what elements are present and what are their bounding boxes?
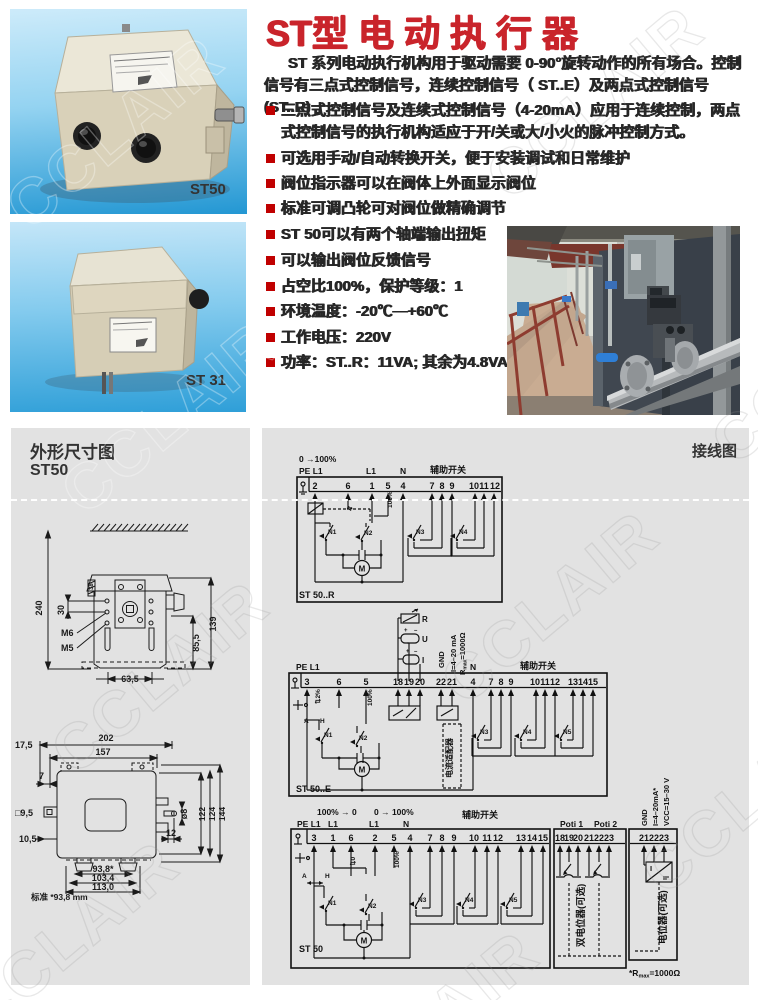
svg-text:N2: N2 <box>364 530 373 537</box>
svg-text:GND: GND <box>437 651 446 668</box>
svg-text:GND: GND <box>640 809 649 826</box>
svg-text:1: 1 <box>330 833 335 843</box>
svg-text:N4: N4 <box>459 529 468 536</box>
svg-text:3: 3 <box>311 833 316 843</box>
svg-text:+: + <box>406 649 410 655</box>
svg-text:122: 122 <box>197 807 207 821</box>
svg-text:4: 4 <box>400 481 405 491</box>
svg-text:113,0: 113,0 <box>92 882 114 892</box>
svg-text:双电位器(可选): 双电位器(可选) <box>575 884 587 948</box>
svg-text:12: 12 <box>550 677 560 687</box>
svg-text:N3: N3 <box>416 529 425 536</box>
svg-text:11: 11 <box>479 481 489 491</box>
svg-text:15: 15 <box>538 833 548 843</box>
svg-text:N5: N5 <box>509 897 518 904</box>
svg-text:202: 202 <box>98 733 113 743</box>
svg-text:11: 11 <box>540 677 550 687</box>
svg-text:8: 8 <box>439 481 444 491</box>
svg-text:7: 7 <box>39 771 44 781</box>
svg-text:0 → 100%: 0 → 100% <box>374 807 414 817</box>
svg-text:5: 5 <box>363 677 368 687</box>
svg-text:15: 15 <box>588 677 598 687</box>
svg-text:N5: N5 <box>563 729 572 736</box>
svg-text:M: M <box>361 937 368 946</box>
svg-text:14: 14 <box>578 677 588 687</box>
svg-text:20: 20 <box>573 833 583 843</box>
svg-text:18: 18 <box>393 677 403 687</box>
svg-text:N1: N1 <box>324 732 333 739</box>
svg-text:2: 2 <box>372 833 377 843</box>
svg-text:20: 20 <box>415 677 425 687</box>
svg-text:I=4–20mA*: I=4–20mA* <box>651 788 660 826</box>
svg-text:100%: 100% <box>394 851 401 868</box>
svg-text:10,5: 10,5 <box>19 834 37 844</box>
svg-text:38: 38 <box>89 583 95 590</box>
svg-text:N: N <box>403 819 409 829</box>
svg-text:⇅2%: ⇅2% <box>314 689 322 704</box>
svg-text:6: 6 <box>348 833 353 843</box>
svg-text:ST 50..E: ST 50..E <box>296 784 331 794</box>
svg-text:85,5: 85,5 <box>191 634 201 652</box>
svg-text:2: 2 <box>312 481 317 491</box>
svg-text:ø8: ø8 <box>179 809 189 820</box>
svg-text:H: H <box>320 718 325 725</box>
svg-text:I=4–20 mA: I=4–20 mA <box>449 634 458 672</box>
svg-text:⇅: ⇅ <box>345 504 355 514</box>
svg-text:0 →100%: 0 →100% <box>299 454 337 464</box>
svg-text:7: 7 <box>427 833 432 843</box>
svg-text:H: H <box>325 873 330 880</box>
svg-text:12: 12 <box>490 481 500 491</box>
svg-text:L1: L1 <box>369 819 379 829</box>
svg-text:12: 12 <box>493 833 503 843</box>
svg-text:19: 19 <box>404 677 414 687</box>
svg-text:5: 5 <box>391 833 396 843</box>
svg-text:标准 *93,8 mm: 标准 *93,8 mm <box>30 892 88 902</box>
svg-text:17,5: 17,5 <box>15 740 33 750</box>
svg-text:13: 13 <box>516 833 526 843</box>
svg-text:N3: N3 <box>480 729 489 736</box>
svg-text:L1: L1 <box>328 819 338 829</box>
svg-text:N4: N4 <box>465 897 474 904</box>
svg-text:N: N <box>470 662 476 672</box>
svg-text:5: 5 <box>385 481 390 491</box>
svg-text:23: 23 <box>604 833 614 843</box>
svg-text:30: 30 <box>56 605 66 615</box>
svg-text:Poti 1: Poti 1 <box>560 819 583 829</box>
svg-text:N4: N4 <box>523 729 532 736</box>
svg-text:1: 1 <box>369 481 374 491</box>
svg-text:M5: M5 <box>61 643 74 653</box>
svg-text:□9,5: □9,5 <box>15 808 33 818</box>
svg-text:–: – <box>414 628 418 634</box>
svg-text:21: 21 <box>584 833 594 843</box>
svg-text:Rmax=1000Ω: Rmax=1000Ω <box>458 632 469 675</box>
svg-text:M: M <box>359 766 366 775</box>
svg-text:10: 10 <box>469 481 479 491</box>
svg-text:23: 23 <box>659 833 669 843</box>
svg-text:I: I <box>650 864 652 873</box>
svg-text:VCC=15–30 V: VCC=15–30 V <box>662 778 671 826</box>
svg-text:8: 8 <box>498 677 503 687</box>
svg-text:4: 4 <box>407 833 412 843</box>
svg-text:14: 14 <box>527 833 537 843</box>
svg-text:100% → 0: 100% → 0 <box>317 807 357 817</box>
svg-text:63,5: 63,5 <box>121 674 139 684</box>
svg-text:6: 6 <box>336 677 341 687</box>
svg-text:M: M <box>359 565 366 574</box>
svg-text:ST 50: ST 50 <box>299 944 323 954</box>
svg-text:M6: M6 <box>61 628 74 638</box>
svg-text:3: 3 <box>304 677 309 687</box>
svg-text:7: 7 <box>488 677 493 687</box>
svg-text:22: 22 <box>649 833 659 843</box>
svg-text:*Rmax=1000Ω: *Rmax=1000Ω <box>629 968 680 980</box>
svg-text:–: – <box>414 649 418 655</box>
svg-text:L1: L1 <box>366 466 376 476</box>
svg-text:100%: 100% <box>367 689 374 706</box>
svg-text:N3: N3 <box>418 897 427 904</box>
svg-text:ST 50..R: ST 50..R <box>299 590 335 600</box>
svg-text:辅助开关: 辅助开关 <box>430 464 466 475</box>
svg-text:22: 22 <box>594 833 604 843</box>
svg-text:+: + <box>404 628 408 634</box>
svg-text:11: 11 <box>482 833 492 843</box>
svg-text:124: 124 <box>207 807 217 821</box>
svg-text:N2: N2 <box>359 735 368 742</box>
svg-text:N: N <box>400 466 406 476</box>
svg-text:辅助开关: 辅助开关 <box>520 660 556 671</box>
svg-text:6: 6 <box>345 481 350 491</box>
svg-text:9: 9 <box>451 833 456 843</box>
svg-text:7: 7 <box>429 481 434 491</box>
svg-text:PE L1: PE L1 <box>297 819 321 829</box>
svg-text:240: 240 <box>34 600 44 615</box>
svg-text:U: U <box>422 635 428 644</box>
svg-text:12: 12 <box>166 828 176 838</box>
svg-text:13: 13 <box>568 677 578 687</box>
svg-text:辅助开关: 辅助开关 <box>462 809 498 820</box>
svg-text:22: 22 <box>436 677 446 687</box>
svg-text:R: R <box>422 615 428 624</box>
svg-text:A: A <box>302 873 307 880</box>
svg-text:9: 9 <box>449 481 454 491</box>
svg-text:N1: N1 <box>328 900 337 907</box>
svg-text:8: 8 <box>439 833 444 843</box>
svg-text:144: 144 <box>217 807 227 821</box>
svg-text:PE L1: PE L1 <box>299 466 323 476</box>
svg-text:Poti 2: Poti 2 <box>594 819 617 829</box>
svg-text:N1: N1 <box>328 529 337 536</box>
svg-text:10: 10 <box>469 833 479 843</box>
svg-text:139: 139 <box>208 616 218 631</box>
svg-text:PE L1: PE L1 <box>296 662 320 672</box>
svg-text:N2: N2 <box>368 903 377 910</box>
svg-text:A: A <box>304 718 309 725</box>
svg-text:10: 10 <box>530 677 540 687</box>
svg-text:4: 4 <box>470 677 475 687</box>
svg-text:9: 9 <box>508 677 513 687</box>
svg-text:I: I <box>422 656 424 665</box>
svg-text:电位器(可选): 电位器(可选) <box>657 890 669 944</box>
svg-text:21: 21 <box>639 833 649 843</box>
svg-text:⇅0: ⇅0 <box>349 857 357 866</box>
svg-text:电流适配器: 电流适配器 <box>444 737 454 778</box>
svg-text:21: 21 <box>447 677 457 687</box>
svg-text:157: 157 <box>95 747 110 757</box>
